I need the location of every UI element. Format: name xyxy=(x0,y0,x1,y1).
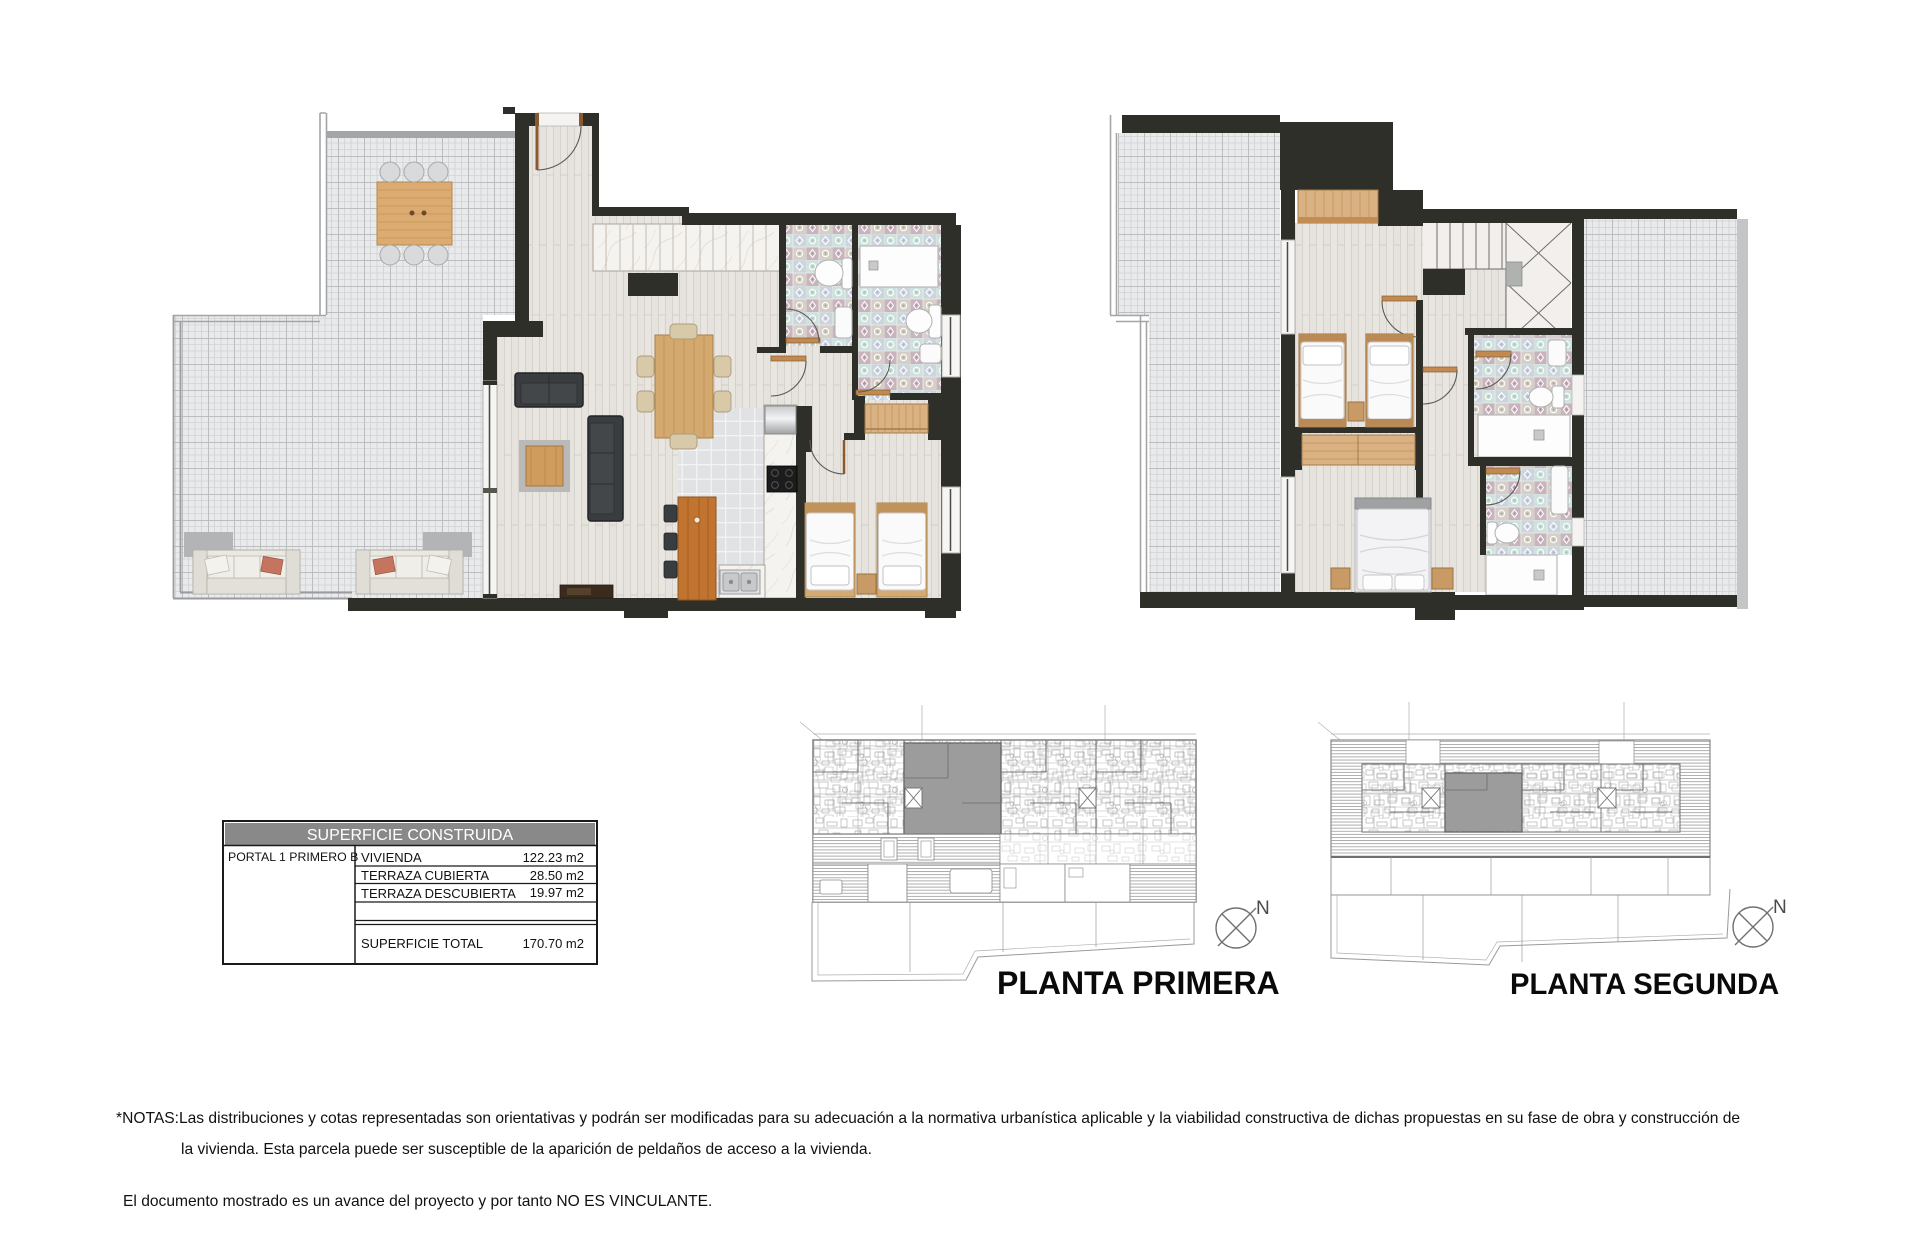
svg-text:170.70 m2: 170.70 m2 xyxy=(523,936,584,951)
svg-text:SUPERFICIE CONSTRUIDA: SUPERFICIE CONSTRUIDA xyxy=(307,827,514,844)
svg-text:N: N xyxy=(1773,897,1787,918)
svg-text:PLANTA PRIMERA: PLANTA PRIMERA xyxy=(997,965,1280,1001)
svg-text:SUPERFICIE TOTAL: SUPERFICIE TOTAL xyxy=(361,936,483,951)
svg-text:N: N xyxy=(1256,898,1270,919)
svg-text:28.50 m2: 28.50 m2 xyxy=(530,868,584,883)
svg-text:TERRAZA CUBIERTA: TERRAZA CUBIERTA xyxy=(361,868,489,883)
svg-text:VIVIENDA: VIVIENDA xyxy=(361,850,422,865)
svg-text:la vivienda. Esta parcela pued: la vivienda. Esta parcela puede ser susc… xyxy=(181,1141,872,1158)
svg-text:19.97 m2: 19.97 m2 xyxy=(530,885,584,900)
svg-text:122.23 m2: 122.23 m2 xyxy=(523,850,584,865)
svg-text:*NOTAS:Las distribuciones y co: *NOTAS:Las distribuciones y cotas repres… xyxy=(116,1110,1740,1127)
svg-text:PLANTA SEGUNDA: PLANTA SEGUNDA xyxy=(1510,969,1779,1001)
svg-text:TERRAZA DESCUBIERTA: TERRAZA DESCUBIERTA xyxy=(361,886,516,901)
svg-text:El documento mostrado es un av: El documento mostrado es un avance del p… xyxy=(123,1193,712,1210)
svg-text:PORTAL 1 PRIMERO B: PORTAL 1 PRIMERO B xyxy=(228,850,358,864)
